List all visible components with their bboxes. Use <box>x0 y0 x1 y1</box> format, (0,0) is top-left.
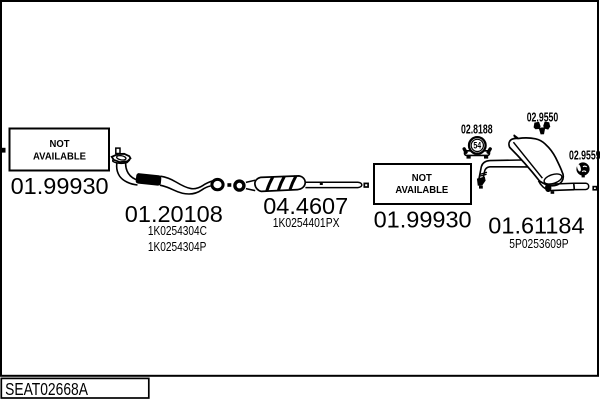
svg-text:01.99930: 01.99930 <box>11 173 109 199</box>
svg-text:02.9550: 02.9550 <box>527 111 559 125</box>
svg-text:SEAT02668A: SEAT02668A <box>5 380 88 400</box>
svg-text:NOT: NOT <box>412 173 432 184</box>
svg-text:1K0254304P: 1K0254304P <box>148 241 206 254</box>
svg-text:AVAILABLE: AVAILABLE <box>33 151 86 162</box>
svg-text:NOT: NOT <box>49 139 69 150</box>
svg-text:02.9559: 02.9559 <box>569 149 600 163</box>
svg-text:02.8188: 02.8188 <box>461 123 493 137</box>
svg-text:5P0253609P: 5P0253609P <box>509 238 569 251</box>
svg-text:04.4607: 04.4607 <box>263 193 348 219</box>
svg-text:AVAILABLE: AVAILABLE <box>395 185 448 196</box>
svg-text:01.20108: 01.20108 <box>125 201 223 227</box>
svg-text:1K0254304C: 1K0254304C <box>148 225 207 238</box>
svg-text:1K0254401PX: 1K0254401PX <box>273 217 340 230</box>
svg-text:01.61184: 01.61184 <box>488 212 584 238</box>
svg-text:01.99930: 01.99930 <box>374 207 472 233</box>
svg-text:54: 54 <box>473 141 481 151</box>
